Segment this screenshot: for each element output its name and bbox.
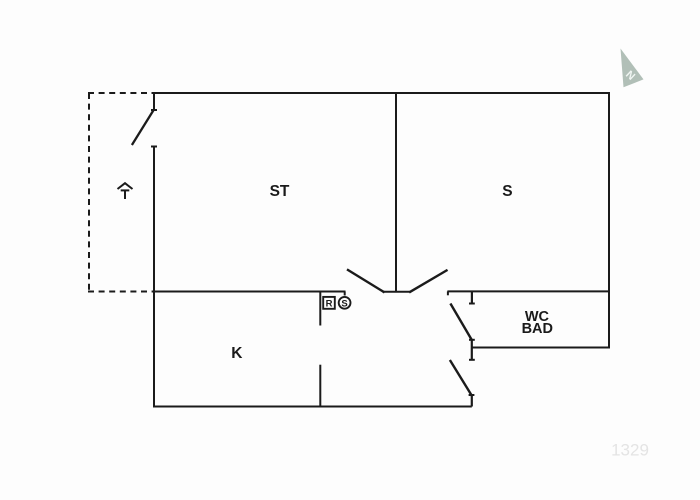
svg-text:R: R [326,299,333,310]
svg-text:1329: 1329 [611,441,649,460]
svg-text:K: K [231,345,243,362]
svg-text:S: S [341,299,347,310]
svg-text:S: S [502,183,512,200]
svg-text:ST: ST [270,183,290,200]
svg-text:BAD: BAD [522,321,553,337]
